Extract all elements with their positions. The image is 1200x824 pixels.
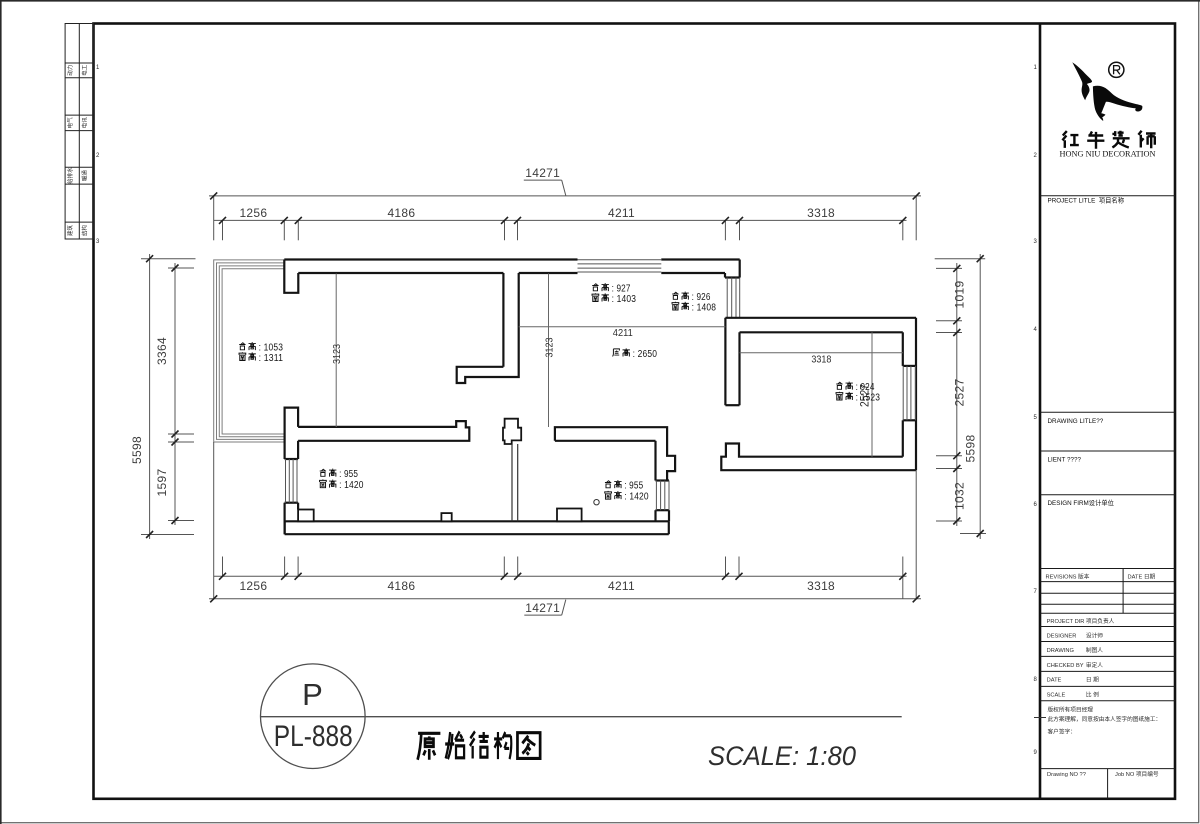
svg-text:设计师: 设计师 xyxy=(1086,632,1103,640)
svg-text:1032: 1032 xyxy=(953,482,967,510)
svg-text:: 955: : 955 xyxy=(339,469,358,480)
svg-text:Job NO 项目编号: Job NO 项目编号 xyxy=(1115,770,1159,778)
svg-text:LIENT ????: LIENT ???? xyxy=(1048,457,1082,464)
svg-text:5598: 5598 xyxy=(130,436,144,464)
svg-text:暖通: 暖通 xyxy=(80,170,88,182)
svg-text:3318: 3318 xyxy=(807,579,835,593)
svg-text:动力: 动力 xyxy=(66,65,74,76)
svg-text:给排水: 给排水 xyxy=(66,167,74,184)
svg-text:: 2650: : 2650 xyxy=(633,349,658,360)
svg-text:3123: 3123 xyxy=(332,344,343,364)
svg-text:PL-888: PL-888 xyxy=(274,720,353,753)
svg-text:1019: 1019 xyxy=(953,281,967,309)
svg-text:SCALE: SCALE xyxy=(1047,693,1066,699)
svg-text:4211: 4211 xyxy=(608,579,635,593)
svg-text:制图人: 制图人 xyxy=(1086,646,1103,654)
svg-text:PROJECT LITLE 项目名称: PROJECT LITLE 项目名称 xyxy=(1048,196,1125,205)
svg-text:: 1408: : 1408 xyxy=(692,302,717,313)
svg-text:5598: 5598 xyxy=(964,435,978,463)
svg-text:4211: 4211 xyxy=(608,206,635,220)
svg-text:结构: 结构 xyxy=(80,225,88,237)
svg-text:1256: 1256 xyxy=(239,206,267,220)
svg-text:3318: 3318 xyxy=(807,206,835,220)
svg-text:: 1420: : 1420 xyxy=(339,480,364,491)
svg-text:PROJECT DIR: PROJECT DIR xyxy=(1047,619,1085,625)
svg-text:2527: 2527 xyxy=(953,379,967,407)
svg-text:3364: 3364 xyxy=(155,337,169,365)
svg-text:日 期: 日 期 xyxy=(1086,677,1099,684)
svg-text:版权所有项目经理: 版权所有项目经理 xyxy=(1048,706,1094,714)
svg-text:3318: 3318 xyxy=(811,354,831,365)
svg-text:比 例: 比 例 xyxy=(1086,691,1099,699)
svg-text:SCALE: 1:80: SCALE: 1:80 xyxy=(708,741,856,771)
svg-text:电气: 电气 xyxy=(66,117,74,129)
svg-text:1256: 1256 xyxy=(239,579,267,593)
svg-text:HONG NIU DECORATION: HONG NIU DECORATION xyxy=(1060,150,1156,159)
svg-text:4186: 4186 xyxy=(387,579,415,593)
svg-text:14271: 14271 xyxy=(525,166,560,180)
svg-text:电工: 电工 xyxy=(80,64,88,76)
svg-text:DRAWING: DRAWING xyxy=(1047,648,1074,654)
svg-text:DATE: DATE xyxy=(1047,678,1062,684)
svg-text:客户签字：: 客户签字： xyxy=(1048,728,1076,736)
svg-text:3123: 3123 xyxy=(545,337,556,357)
svg-text:Drawing NO ??: Drawing NO ?? xyxy=(1047,772,1086,778)
svg-text:: 1420: : 1420 xyxy=(624,492,649,503)
svg-text:DATE 日期: DATE 日期 xyxy=(1128,574,1156,581)
svg-text:: 1311: : 1311 xyxy=(259,353,284,364)
svg-text:DESIGN FIRM设计单位: DESIGN FIRM设计单位 xyxy=(1048,498,1115,507)
svg-text:CHECKED BY: CHECKED BY xyxy=(1047,663,1084,669)
svg-text:P: P xyxy=(302,677,323,712)
svg-text:: 955: : 955 xyxy=(624,481,643,492)
svg-text:项目负责人: 项目负责人 xyxy=(1086,617,1115,625)
svg-text:电讯: 电讯 xyxy=(80,117,88,129)
svg-text:DESIGNER: DESIGNER xyxy=(1047,634,1077,640)
svg-text:: 1403: : 1403 xyxy=(612,294,637,305)
svg-text:REVISIONS 版本: REVISIONS 版本 xyxy=(1046,573,1090,581)
svg-text:1597: 1597 xyxy=(155,469,169,497)
svg-text:4186: 4186 xyxy=(387,206,415,220)
svg-text:建筑: 建筑 xyxy=(66,225,74,237)
svg-text:14271: 14271 xyxy=(525,601,560,615)
svg-text:审定人: 审定人 xyxy=(1086,661,1103,669)
svg-text:此方案理解，同意按由本人签字的图纸施工：: 此方案理解，同意按由本人签字的图纸施工： xyxy=(1048,715,1162,723)
svg-text:DRAWING LITLE??: DRAWING LITLE?? xyxy=(1048,418,1104,425)
svg-text:4211: 4211 xyxy=(613,328,633,339)
svg-text:: 1523: : 1523 xyxy=(856,392,881,403)
